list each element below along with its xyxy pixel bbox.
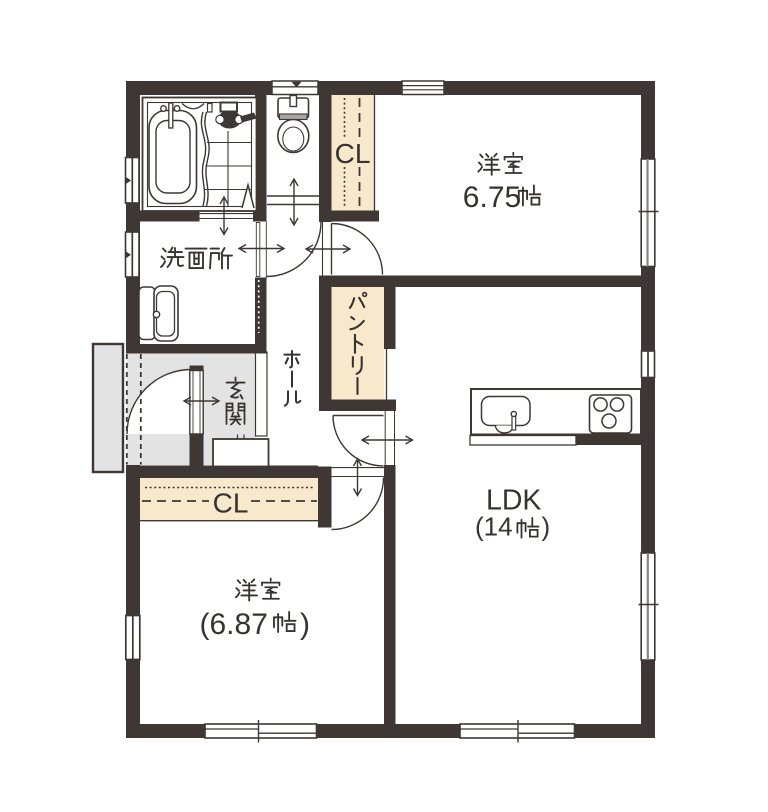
- svg-text:6.75: 6.75: [463, 181, 521, 214]
- svg-text:CL: CL: [335, 138, 371, 169]
- svg-text:): ): [300, 608, 310, 641]
- svg-text:): ): [542, 512, 551, 542]
- svg-text:(6.87: (6.87: [200, 608, 268, 641]
- svg-text:(14: (14: [475, 512, 513, 542]
- svg-text:CL: CL: [213, 488, 249, 519]
